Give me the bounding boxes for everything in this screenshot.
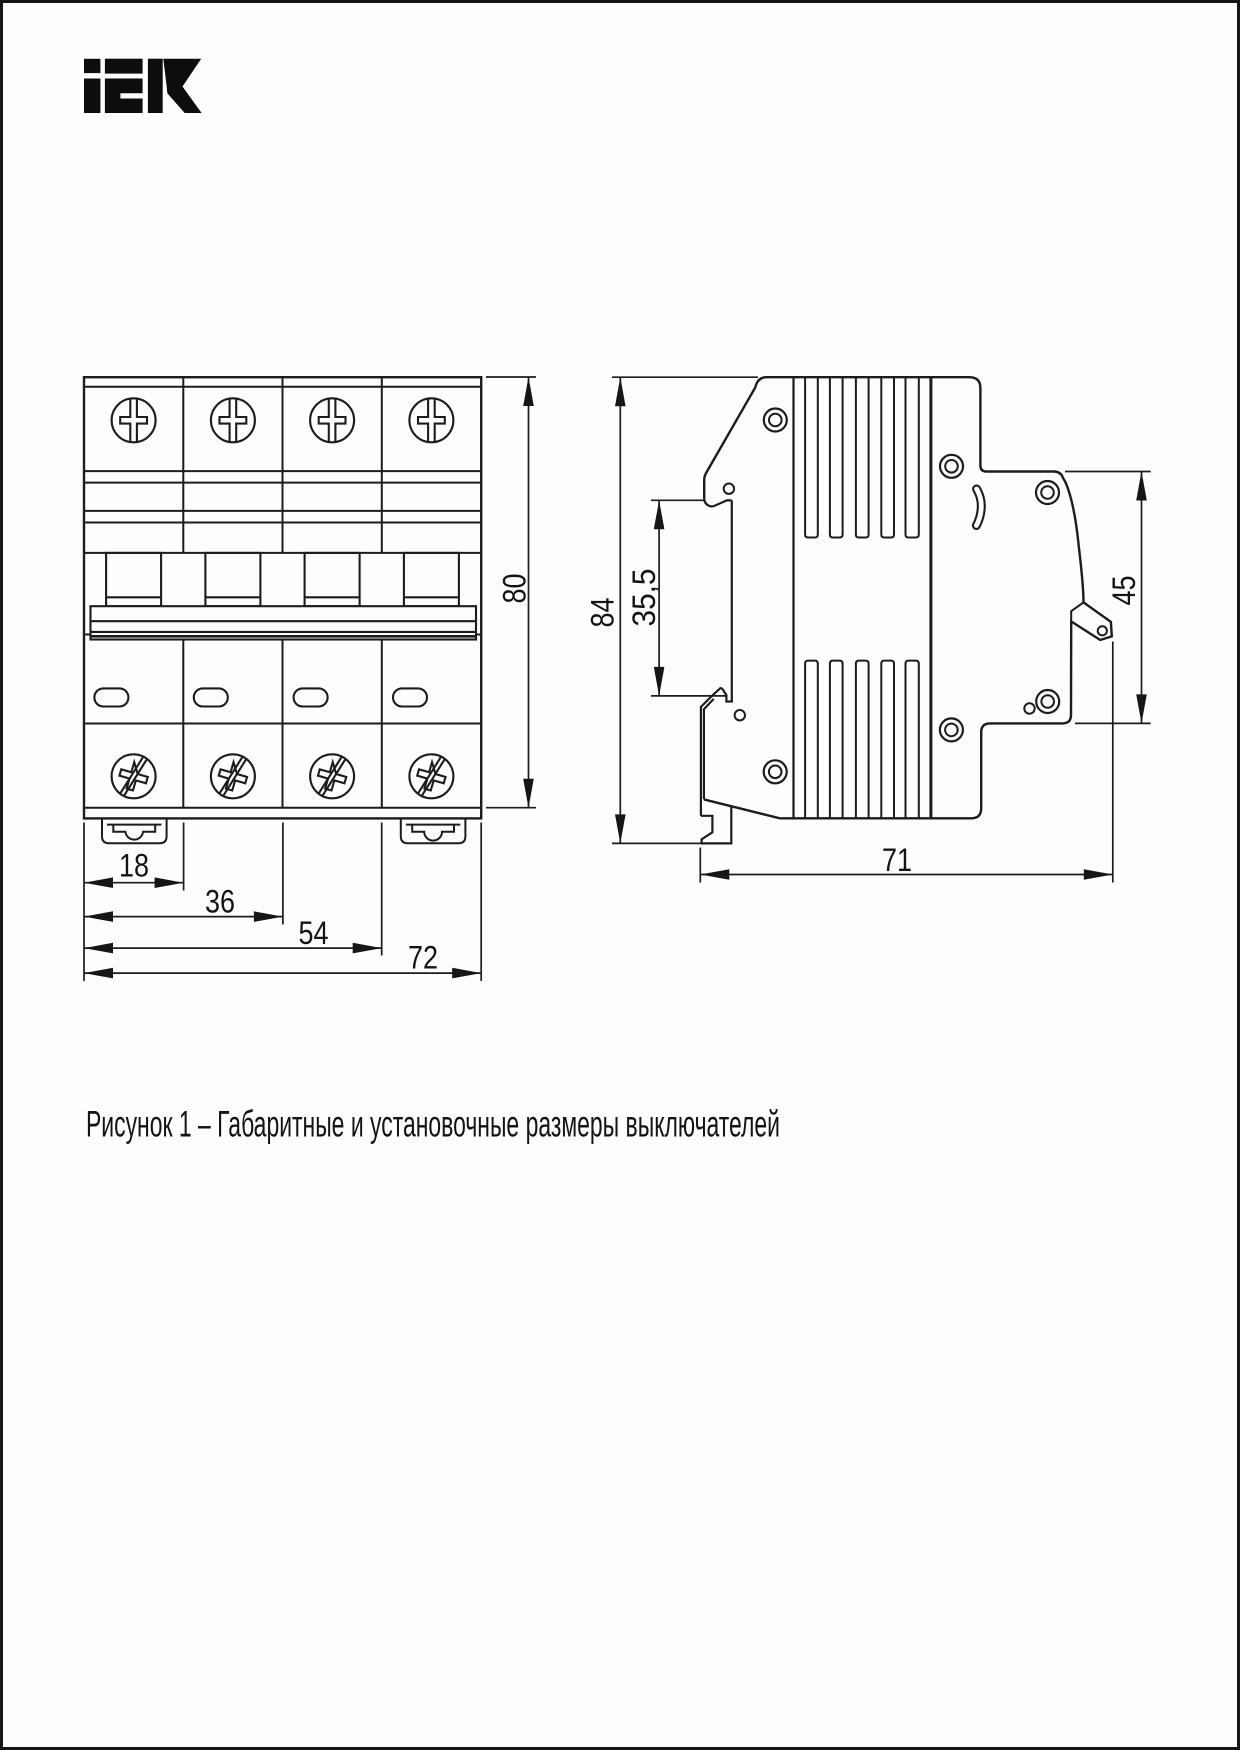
svg-text:Рисунок 1 – Габаритные и устан: Рисунок 1 – Габаритные и установочные ра…	[86, 1103, 780, 1144]
svg-text:45: 45	[1106, 576, 1142, 606]
svg-text:80: 80	[497, 574, 533, 604]
svg-text:84: 84	[585, 598, 621, 628]
svg-text:71: 71	[882, 842, 912, 878]
svg-text:18: 18	[119, 848, 149, 884]
svg-text:35,5: 35,5	[626, 569, 662, 627]
svg-text:36: 36	[205, 884, 235, 920]
svg-text:72: 72	[408, 940, 438, 976]
svg-text:54: 54	[299, 915, 329, 951]
